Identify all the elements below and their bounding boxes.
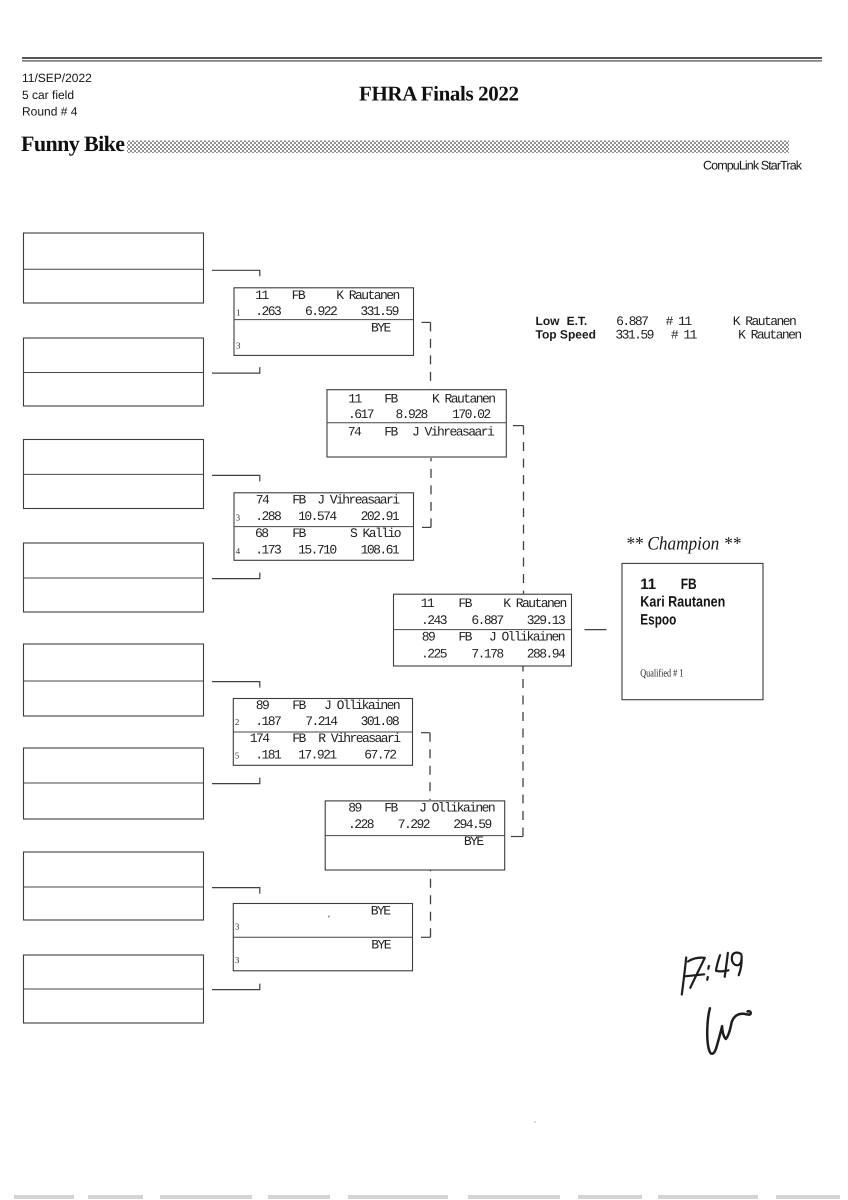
svg-text:FB: FB (292, 731, 306, 746)
svg-text:FB: FB (292, 526, 306, 541)
svg-text:174: 174 (250, 731, 271, 746)
svg-text:# 11: # 11 (671, 327, 698, 342)
svg-text:BYE: BYE (371, 904, 392, 919)
svg-text:** Champion **: ** Champion ** (626, 534, 741, 555)
svg-text:.225: .225 (421, 647, 447, 662)
svg-text:331.59: 331.59 (615, 327, 653, 342)
svg-text:.187: .187 (255, 714, 281, 729)
svg-text:Top Speed: Top Speed (536, 327, 596, 341)
svg-text:FB: FB (384, 425, 398, 440)
svg-text:2: 2 (235, 717, 240, 727)
svg-text:11: 11 (640, 576, 656, 593)
svg-text:6.922: 6.922 (305, 304, 337, 319)
svg-text:FB: FB (292, 493, 306, 508)
svg-text:J Ollikainen: J Ollikainen (489, 630, 565, 645)
svg-text:89: 89 (348, 801, 361, 816)
svg-text:Round # 4: Round # 4 (22, 105, 78, 119)
svg-text:CompuLink StarTrak: CompuLink StarTrak (703, 159, 803, 173)
svg-text:.173: .173 (255, 543, 281, 558)
svg-text:J Vihreasaari: J Vihreasaari (317, 493, 400, 508)
svg-text:11: 11 (421, 596, 435, 611)
svg-text:7.214: 7.214 (305, 714, 338, 729)
svg-text:K Rautanen: K Rautanen (503, 596, 566, 611)
svg-text:3: 3 (235, 955, 240, 965)
svg-text:11: 11 (348, 392, 362, 407)
svg-text:89: 89 (256, 698, 269, 713)
svg-text:108.61: 108.61 (361, 543, 400, 558)
svg-text:11: 11 (255, 288, 269, 303)
svg-text:Espoo: Espoo (640, 612, 676, 629)
svg-text:15.710: 15.710 (298, 543, 336, 558)
svg-text:FB: FB (384, 801, 398, 816)
svg-text:10.574: 10.574 (298, 509, 337, 524)
svg-text:FHRA Finals 2022: FHRA Finals 2022 (359, 82, 519, 106)
svg-text:7.178: 7.178 (471, 647, 503, 662)
svg-text:J Vihreasaari: J Vihreasaari (412, 425, 495, 440)
svg-text:R Vihreasaari: R Vihreasaari (318, 731, 401, 746)
svg-text:K Rautanen: K Rautanen (336, 288, 399, 303)
svg-text:202.91: 202.91 (361, 509, 400, 524)
svg-text:5 car field: 5 car field (22, 88, 74, 102)
svg-text:.228: .228 (348, 817, 374, 832)
svg-text:74: 74 (348, 425, 362, 440)
svg-text:S Kallio: S Kallio (350, 526, 401, 541)
svg-text:89: 89 (422, 630, 435, 645)
svg-text:E.T.: E.T. (567, 314, 588, 328)
svg-text:Qualified # 1: Qualified # 1 (640, 668, 683, 680)
svg-text:294.59: 294.59 (453, 817, 491, 832)
svg-text:K Rautanen: K Rautanen (432, 392, 495, 407)
svg-text:J Ollikainen: J Ollikainen (324, 698, 400, 713)
svg-text:FB: FB (458, 630, 472, 645)
svg-text:J Ollikainen: J Ollikainen (419, 801, 495, 816)
svg-text:FB: FB (458, 596, 472, 611)
svg-text:331.59: 331.59 (360, 304, 398, 319)
svg-text:BYE: BYE (464, 834, 485, 849)
svg-text:BYE: BYE (371, 320, 392, 335)
svg-text:.263: .263 (255, 304, 281, 319)
svg-text:1: 1 (236, 308, 241, 318)
svg-text:5: 5 (235, 751, 240, 761)
svg-text:11/SEP/2022: 11/SEP/2022 (22, 71, 92, 85)
svg-text:7.292: 7.292 (398, 817, 430, 832)
svg-text:.243: .243 (421, 613, 447, 628)
svg-text:17.921: 17.921 (298, 748, 337, 763)
svg-text:4: 4 (236, 546, 241, 556)
svg-text:Kari Rautanen: Kari Rautanen (640, 594, 725, 611)
svg-text:Funny Bike: Funny Bike (21, 131, 125, 156)
svg-text:.288: .288 (255, 509, 281, 524)
svg-text:3: 3 (236, 340, 241, 350)
svg-text:.181: .181 (255, 748, 282, 763)
svg-text:BYE: BYE (371, 937, 392, 952)
svg-text:67.72: 67.72 (364, 748, 396, 763)
svg-text:6.887: 6.887 (471, 613, 503, 628)
svg-text:FB: FB (384, 392, 398, 407)
svg-text:3: 3 (236, 513, 241, 523)
svg-text:74: 74 (256, 493, 270, 508)
svg-text:8.928: 8.928 (396, 407, 428, 422)
svg-text:68: 68 (255, 526, 268, 541)
svg-text:329.13: 329.13 (527, 613, 565, 628)
svg-text:FB: FB (292, 288, 306, 303)
svg-text:3: 3 (235, 922, 240, 932)
svg-text:FB: FB (681, 576, 697, 593)
svg-text:301.08: 301.08 (361, 714, 399, 729)
svg-text:FB: FB (292, 698, 306, 713)
svg-text:170.02: 170.02 (452, 407, 490, 422)
svg-text:K Rautanen: K Rautanen (738, 327, 801, 342)
svg-text:Low: Low (536, 314, 561, 328)
svg-text:288.94: 288.94 (527, 647, 566, 662)
svg-text:.617: .617 (348, 407, 374, 422)
